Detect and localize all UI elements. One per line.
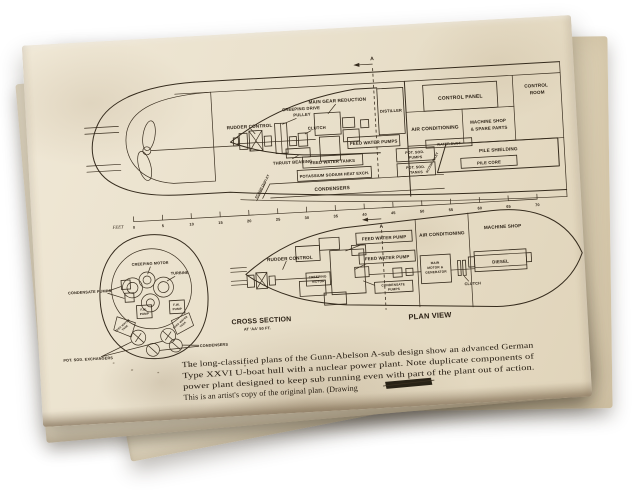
air-conditioning-label: AIR CONDITIONING (411, 124, 459, 133)
svg-text:F.W. PUMP: F.W. PUMP (172, 302, 182, 311)
elevation-view: RUDDER CONTROL CREEPING DRIVE PULLEY CLU… (81, 46, 567, 223)
condensate-pumps-label: CONDENSATE PUMPS (68, 289, 112, 295)
plan-shaft-line (369, 269, 475, 275)
svg-text:FEED WATER TANK: FEED WATER TANK (114, 317, 133, 335)
rudder-control-label: RUDDER CONTROL (227, 123, 273, 131)
elevation-deck-line-2 (175, 73, 560, 95)
plan-clutch-label: CLUTCH (464, 281, 481, 286)
control-panel-label: CONTROL PANEL (438, 94, 483, 102)
scale-tick-label: 55 (449, 208, 454, 212)
scale-tick-label: 20 (247, 219, 252, 223)
submarine-drawing: RUDDER CONTROL CREEPING DRIVE PULLEY CLU… (22, 15, 592, 427)
control-room-divider (512, 75, 516, 140)
scoop-outlet-label: SCOOP OUTLET (254, 174, 270, 199)
svg-text:CONDENSATE PUMPS: CONDENSATE PUMPS (381, 282, 406, 292)
feed-water-pumps-label: FEED WATER PUMPS (350, 138, 398, 146)
plan-hull-outline (243, 205, 585, 320)
cross-section-condensers-label: CONDENSERS (200, 343, 229, 349)
stern-fin-lines (84, 126, 120, 172)
elevation-hull-outline (89, 62, 567, 216)
feed-water-tank-left: FEED WATER TANK (113, 316, 136, 338)
pot-sod-exchangers-label: POT. SOD. EXCHANGERS (63, 356, 113, 363)
scale-tick-label: 25 (276, 217, 281, 221)
stern-inner-envelope (123, 92, 215, 186)
scale-tick-label: 45 (391, 211, 396, 215)
distiller-label: DISTILLER (380, 108, 402, 114)
fw-pump-right: F.W. PUMP (169, 300, 185, 314)
elevation-deck-line (194, 62, 559, 82)
machine-shop-label: MACHINE SHOP & SPARE PARTS (470, 118, 508, 132)
scale-tick-labels: 0 5 10 15 20 25 30 35 40 45 50 55 60 65 … (133, 203, 540, 230)
plan-machinery (295, 236, 371, 307)
scale-tick-label: 30 (305, 216, 310, 220)
creeping-drive-pulley-label: CREEPING DRIVE PULLEY (282, 105, 322, 118)
svg-text:CREEPING MOTOR: CREEPING MOTOR (309, 274, 328, 284)
aft-bulkhead (404, 81, 410, 196)
plan-air-conditioning-label: AIR CONDITIONING (419, 230, 465, 238)
plan-clutch: CLUTCH (457, 259, 481, 286)
feed-water-pump-label-1: FEED WATER PUMP (362, 234, 407, 241)
pot-sod-pumps-label: POT. SOD. PUMPS (405, 150, 426, 160)
cross-section-view: CREEPING MOTOR TURBINE CONDENSATE PUMPS … (57, 227, 293, 364)
control-room-label: CONTROL ROOM (524, 82, 550, 95)
turbine-label: TURBINE (171, 271, 189, 276)
plan-machine-shop-label: MACHINE SHOP (484, 223, 522, 230)
thrust-bearing-label: THRUST BEARING (273, 159, 313, 166)
scale-tick-label: 60 (477, 206, 482, 210)
cross-section-condensers: CONDENSERS (146, 336, 229, 357)
section-marker-a-top: A (370, 56, 374, 62)
condensers-label: CONDENSERS (314, 185, 350, 193)
scale-tick-label: 15 (218, 221, 223, 225)
plan-view: AIR CONDITIONING MACHINE SHOP RUDDER CON… (228, 205, 585, 331)
plan-view-title: PLAN VIEW (408, 310, 452, 321)
scale-tick-label: 65 (506, 205, 511, 209)
scale-tick-label: 5 (162, 224, 164, 228)
bow-edge (559, 62, 567, 197)
photo-of-submarine-plans: RUDDER CONTROL CREEPING DRIVE PULLEY CLU… (0, 0, 640, 491)
section-line-a-upper: A (353, 56, 381, 179)
plan-condensate-pumps: CONDENSATE PUMPS (363, 278, 413, 294)
scale-unit-label: FEET (111, 224, 124, 230)
svg-text:MAIN MOTOR &: MAIN MOTOR & GENERATOR (425, 260, 448, 274)
svg-text:F.W. PUMP: F.W. PUMP (139, 307, 149, 316)
scale-tick-label: 50 (420, 209, 425, 213)
creeping-motor-label: CREEPING MOTOR (132, 261, 169, 267)
main-motor-generator: MAIN MOTOR & GENERATOR (420, 254, 452, 284)
scale-tick-label: 35 (333, 214, 338, 218)
scale-tick-label: 10 (189, 222, 194, 226)
clutch-label: CLUTCH (308, 125, 326, 131)
scale-tick-label: 0 (133, 226, 135, 230)
feed-water-tanks-label: FEED WATER TANKS (310, 158, 355, 165)
caption: The long-classified plans of the Gunn-Ab… (182, 341, 536, 403)
scale-tick-label: 40 (362, 213, 367, 217)
scale-tick-label: 70 (535, 203, 540, 207)
cross-section-outer (97, 232, 212, 362)
potassium-sodium-label: POTASSIUM SODIUM HEAT EXCH. (300, 170, 370, 179)
pile-shielding-label: PILE SHIELDING (479, 146, 518, 153)
plan-creeping-motor: CREEPING MOTOR (306, 272, 331, 286)
drawing-sheet: RUDDER CONTROL CREEPING DRIVE PULLEY CLU… (22, 15, 592, 427)
diesel-label: DIESEL (492, 259, 509, 265)
cross-section-title: CROSS SECTION (231, 316, 291, 326)
pile-core-label: PILE CORE (477, 159, 501, 165)
diesel-engine: DIESEL (468, 249, 532, 272)
section-marker-a-mid: A (379, 224, 383, 230)
feed-water-pump-label-2: FEED WATER PUMP (365, 254, 410, 261)
propeller (133, 119, 160, 182)
cross-section-subtitle: AT 'AA' 50 FT. (244, 326, 271, 331)
